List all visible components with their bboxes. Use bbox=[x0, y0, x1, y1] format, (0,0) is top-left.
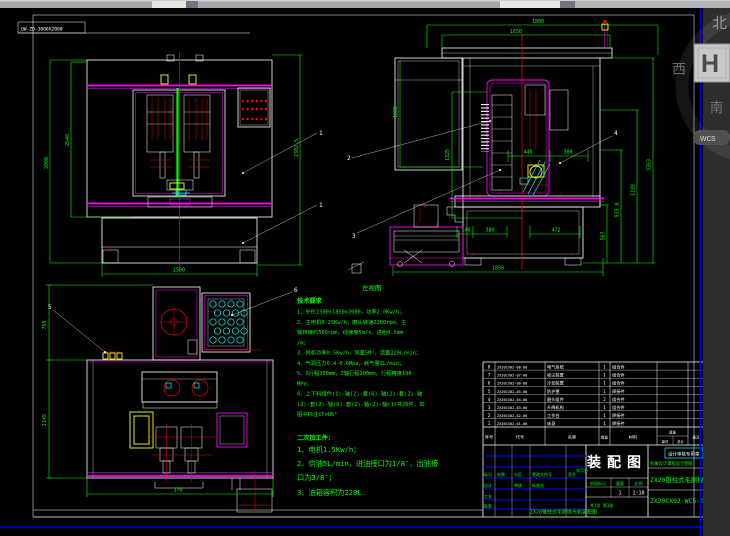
watermark-char-mid: H bbox=[701, 50, 719, 78]
dim-side-top-inner: 1650 bbox=[510, 29, 522, 35]
drawing-title: 装配图 bbox=[586, 454, 647, 471]
svg-text:焊接件: 焊接件 bbox=[612, 388, 625, 395]
preview-side-panel bbox=[703, 8, 730, 536]
bom-header-no: 序号 bbox=[485, 434, 493, 441]
rev-label-zone: 分区 bbox=[514, 471, 522, 477]
svg-text:组合件: 组合件 bbox=[612, 364, 625, 371]
svg-text:ZX20CX02-04-00: ZX20CX02-04-00 bbox=[497, 398, 527, 402]
sign-label-standard: 标准化 bbox=[532, 482, 544, 488]
cert-line: 机械设计课程设计图纸 bbox=[650, 460, 694, 467]
dim-top-left-lower: 1145 bbox=[42, 414, 48, 426]
balloon-6: 5 bbox=[48, 304, 52, 311]
watermark-char-south: 南 bbox=[710, 100, 723, 115]
rev-label-mark: 标记 bbox=[484, 471, 492, 477]
dim-side-top-outer: 1800 bbox=[532, 19, 544, 25]
balloon-2: 1 bbox=[319, 202, 323, 209]
svg-text:ZX20CX02-08-00: ZX20CX02-08-00 bbox=[497, 366, 527, 370]
tech-notes-title: 技术要求 bbox=[297, 297, 323, 305]
scale-value: 1:10 bbox=[632, 491, 644, 497]
tech-note-line: MPa； bbox=[297, 381, 312, 387]
svg-text:ZX20CX02-07-00: ZX20CX02-07-00 bbox=[497, 374, 527, 378]
dim-side-left-upper: 1082 bbox=[393, 106, 399, 118]
svg-text:升降机构: 升降机构 bbox=[547, 404, 564, 411]
balloon-7: 6 bbox=[294, 287, 298, 294]
dim-front-right: 2302.5 bbox=[294, 139, 300, 157]
tech-note-line: 6、上下料组件(1)-轴(2)-套(6)-轴(2)-套(2)-轴 bbox=[297, 390, 422, 398]
svg-text:ZX20CX02-01-00: ZX20CX02-01-00 bbox=[497, 422, 527, 426]
dim-side-right-c: 1188 bbox=[631, 184, 637, 196]
dim-side-mid-a: 440 bbox=[523, 150, 532, 156]
dim-side-bottom-a: 140 bbox=[461, 228, 470, 234]
dim-side-right-a: 567 bbox=[601, 231, 607, 240]
svg-text:电气系统: 电气系统 bbox=[547, 364, 564, 371]
bom-header-weight: 重量 bbox=[669, 430, 676, 435]
dim-top-left-upper: 755 bbox=[42, 320, 48, 329]
dim-front-left-outer: 2000 bbox=[44, 157, 50, 169]
sign-label-approve: 批准 bbox=[484, 503, 492, 509]
weight-label: 重量 bbox=[616, 480, 624, 486]
dim-side-bottom-b: 380 bbox=[485, 228, 494, 234]
bom-header-qty: 数量 bbox=[601, 435, 608, 440]
svg-text:ZX20CX02-03-00: ZX20CX02-03-00 bbox=[497, 406, 527, 410]
watermark-button: H bbox=[694, 44, 730, 82]
svg-text:工作台: 工作台 bbox=[547, 412, 560, 419]
sign-label-process: 工艺 bbox=[484, 494, 492, 499]
bom-header-material: 材料 bbox=[629, 434, 638, 441]
tech-note-line: /m； bbox=[297, 340, 309, 346]
tech-note-line: 图中标注CT≠86° bbox=[297, 410, 337, 418]
window-chrome-strip bbox=[0, 0, 730, 8]
dim-front-left-inner: 2548 bbox=[65, 134, 71, 146]
svg-text:焊接件: 焊接件 bbox=[612, 420, 625, 427]
dim-side-right-d: 3363 bbox=[647, 159, 653, 171]
chrome-bar-right bbox=[575, 1, 730, 8]
svg-text:组合件: 组合件 bbox=[612, 404, 625, 411]
scale-label: 比例 bbox=[635, 480, 643, 486]
svg-text:ZX20CX02-06-00: ZX20CX02-06-00 bbox=[497, 382, 527, 386]
balloon-1: 1 bbox=[319, 130, 323, 137]
bom-header-remark: 备注 bbox=[693, 435, 700, 440]
rev-label-doc: 更改文件号 bbox=[532, 471, 552, 477]
svg-text:吸尘装置: 吸尘装置 bbox=[547, 372, 564, 379]
dim-side-bottom-overall: 1850 bbox=[492, 266, 504, 272]
watermark-pill-text: wcs bbox=[699, 133, 716, 143]
svg-text:组合件: 组合件 bbox=[612, 380, 625, 387]
bom-row: 3ZX20CX02-03-00升降机构1组合件 bbox=[488, 404, 625, 411]
bom-row: 5ZX20CX02-05-00防护罩1焊接件 bbox=[488, 388, 625, 395]
watermark-pill[interactable]: wcs bbox=[693, 130, 730, 145]
tech-note-line: 3、风机功率0.5Kw/h，风量5M³，流量220L/min； bbox=[297, 349, 421, 357]
dim-side-right-b: 935.8 bbox=[615, 202, 621, 217]
bom-row: 7ZX20CX02-07-00吸尘装置1组合件 bbox=[488, 372, 625, 379]
svg-text:磨头组件: 磨头组件 bbox=[547, 396, 564, 403]
balloon-5: 4 bbox=[614, 130, 618, 137]
tech-note-line: 2、主电机0.25Kw/h，磨头转速2200rpm，主 bbox=[297, 318, 407, 326]
purchase-note-line: 3、油箱容积为220L. bbox=[297, 488, 366, 497]
svg-text:冷却装置: 冷却装置 bbox=[547, 380, 564, 387]
balloon-4: 3 bbox=[352, 233, 356, 240]
cad-preview-stage: QW-ZD-3000X2000 bbox=[0, 0, 730, 536]
bom-row: 2ZX20CX02-02-00工作台1焊接件 bbox=[488, 412, 625, 419]
purchase-note-line: 2、供油5L/min，进油接口为1/8″，出油接 bbox=[297, 459, 438, 468]
balloon-3: 2 bbox=[347, 155, 351, 162]
rev-label-count: 处数 bbox=[497, 471, 505, 477]
bom-row: 8ZX20CX02-08-00电气系统1组合件 bbox=[488, 364, 625, 371]
svg-text:组合件: 组合件 bbox=[612, 396, 625, 403]
purchase-note-line: 口为3/8″； bbox=[297, 473, 336, 482]
purchase-note-line: 1、电机1.5Kw/h； bbox=[297, 445, 360, 454]
svg-text:ZX20CX02-02-00: ZX20CX02-02-00 bbox=[497, 414, 527, 418]
bom-row: 4ZX20CX02-04-00磨头组件2组合件 bbox=[488, 396, 625, 403]
purchase-notes-title: 二次加工件： bbox=[297, 434, 334, 442]
dim-side-mid-b: 300 bbox=[563, 150, 572, 156]
dim-top-bottom: 370 bbox=[173, 488, 182, 494]
svg-text:焊接件: 焊接件 bbox=[612, 412, 625, 419]
sign-label-design: 设计 bbox=[484, 482, 492, 488]
chrome-tab-divider bbox=[560, 1, 575, 8]
sheet-info: 共1张 第1张 bbox=[590, 502, 613, 508]
sheet-label: QW-ZD-3000X2000 bbox=[21, 27, 63, 33]
tech-note-line: 轴转速约500rpm，线速度5m/s，进给0.5mm bbox=[297, 328, 403, 336]
bom-header-code: 代号 bbox=[516, 434, 524, 441]
svg-text:防护罩: 防护罩 bbox=[547, 388, 560, 395]
stamp-text: 设计审核专用章 bbox=[668, 451, 700, 458]
chrome-tab-segment[interactable] bbox=[500, 1, 560, 8]
svg-text:ZX20CX02-05-00: ZX20CX02-05-00 bbox=[497, 390, 527, 394]
bom-row: 6ZX20CX02-06-00冷却装置1组合件 bbox=[488, 380, 625, 387]
sign-label-check: 审核 bbox=[514, 482, 522, 488]
bom-header-total: 总计 bbox=[677, 439, 684, 444]
tech-note-line: 5、X行程300mm，Z轴行程200mm，行程精度100 bbox=[297, 369, 412, 377]
tech-note-line: 1、外形1500x1850x2000，功率2.0Kw/h； bbox=[297, 308, 404, 316]
watermark-char-west: 西 bbox=[672, 61, 686, 77]
bom-header-name: 名称 bbox=[568, 434, 576, 441]
dim-side-left-lower: 1325 bbox=[445, 149, 451, 161]
tech-note-line: (2)-套(2)-轴(6)-套(2)-轴(2)-轴(1)共26件，如 bbox=[297, 400, 424, 408]
titleblock-bottom-caption: ZX20锥柱式毛刷抛光机装配图 bbox=[530, 509, 597, 516]
tech-note-line: 4、气源压力0.4-0.6Mpa，耗气量2L/min； bbox=[297, 359, 404, 367]
side-view-caption: 左视图 bbox=[362, 283, 382, 292]
dim-front-bottom: 1500 bbox=[173, 268, 185, 274]
dim-side-bottom-c: 472 bbox=[551, 228, 560, 234]
chrome-tab-segment[interactable] bbox=[152, 1, 186, 8]
svg-text:组合件: 组合件 bbox=[612, 372, 625, 379]
svg-text:床身: 床身 bbox=[547, 420, 555, 427]
bom-header-unit: 单件 bbox=[662, 439, 669, 444]
watermark-char-north: 北 bbox=[712, 15, 727, 32]
rev-label-sign: 签名 bbox=[568, 471, 576, 477]
weight-value: 1 bbox=[618, 491, 621, 497]
chrome-tab-divider bbox=[186, 1, 198, 8]
stage-label: 阶段标记 bbox=[590, 480, 606, 486]
